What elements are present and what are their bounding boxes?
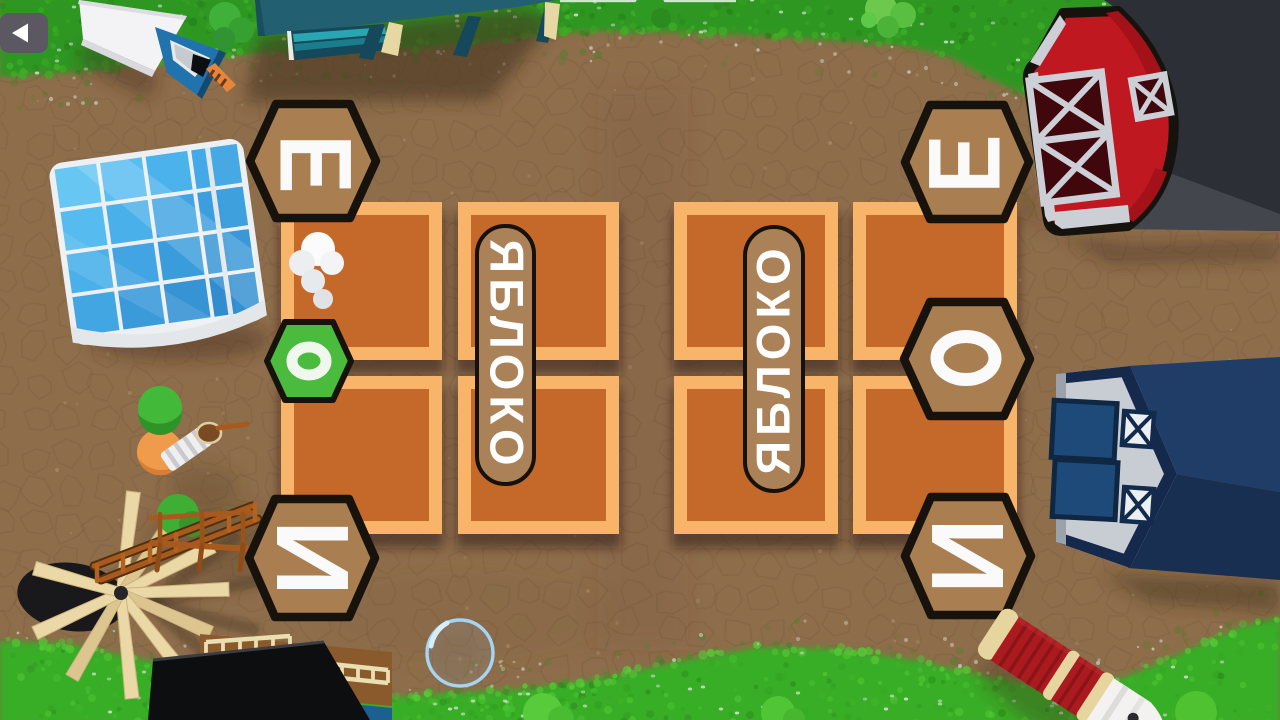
svg-text:ЯБЛОКО: ЯБЛОКО <box>747 243 800 474</box>
svg-text:И: И <box>910 518 1025 594</box>
svg-text:ЯБЛОКО: ЯБЛОКО <box>481 239 534 470</box>
svg-text:Е: Е <box>908 134 1022 193</box>
svg-text:Е: Е <box>258 134 372 193</box>
svg-text:И: И <box>254 520 369 596</box>
